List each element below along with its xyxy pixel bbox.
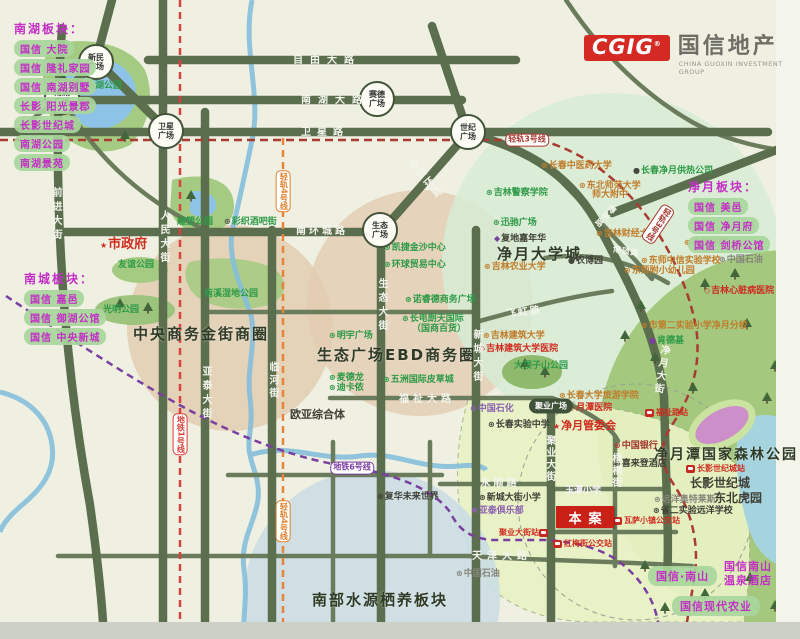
label-text: 雕塑公园 [177, 217, 213, 227]
road-label: 南环城路 [296, 227, 348, 237]
label-text: 吉林建筑大学医院 [486, 344, 558, 354]
project-pill: 国信 隆礼家园 [14, 59, 96, 76]
transit-line-label: 轻轨4号线 [276, 500, 291, 542]
landmark-label: 师大附中 [592, 191, 628, 200]
label-text: 福祉路站 [656, 408, 688, 417]
label-text: 彩织酒吧街 [232, 217, 277, 227]
project-pill: 国信 嘉邑 [24, 290, 84, 307]
road-label: 南四环路 [404, 159, 443, 202]
landmark-icon: ⊛ [653, 506, 660, 515]
landmark-icon: ⊛ [654, 495, 661, 504]
plaza-node: 聚业广场 [529, 399, 573, 414]
landmark-icon: ● [633, 166, 640, 175]
landmark-label: ⊛中国石化 [470, 405, 514, 414]
landmark-label: ⊛凯捷金沙中心 [384, 244, 446, 253]
landmark-label: ⊛中国银行 [614, 442, 658, 451]
landmark-label: ⊛吉林建筑大学 [483, 332, 545, 341]
landmark-label: 东北虎园 [714, 492, 762, 505]
landmark-label: ⊛吉林警察学院 [486, 189, 548, 198]
district-panel-title: 净月板块： [688, 178, 770, 195]
district-panel-title: 南湖板块： [14, 20, 96, 37]
landmark-icon: ✱ [471, 506, 478, 515]
project-pill: 长影世纪城 [14, 116, 81, 133]
label-text: 复华未来世界 [385, 492, 439, 502]
zone-label: 净月潭国家森林公园 [654, 448, 798, 463]
landmark-label: 友谊公园 [118, 261, 154, 270]
landmark-label: ⊛复华未来世界 [377, 493, 439, 502]
label-text: 瓦萨小镇公交站 [624, 516, 680, 525]
landmark-label: 雕塑公园 [177, 218, 213, 227]
road-label: 梧桐街 [610, 453, 620, 489]
bus-station-icon [553, 540, 562, 548]
label-text: 五洲国际皮草城 [391, 375, 454, 385]
bus-station-icon [645, 409, 654, 417]
landmark-icon: ⊛ [488, 420, 495, 429]
label-text: 中国石油 [464, 569, 500, 579]
road-label: 生态大街 [376, 278, 386, 334]
landmark-label: ⊛环球贸易中心 [384, 261, 446, 270]
label-text: 喜来登酒店 [622, 459, 667, 469]
landmark-label: ●长春净月供热公司 [633, 167, 713, 176]
bus-station-icon [613, 517, 622, 525]
label-text: 南溪湿地公园 [204, 289, 258, 299]
project-pill: 国信 南湖别墅 [14, 78, 96, 95]
road-label: 临河街 [267, 362, 277, 401]
landmark-icon: ⊛ [405, 295, 412, 304]
transit-line-label: 轻轨3号线 [505, 134, 549, 147]
label-text: 诺睿德商务广场 [413, 295, 476, 305]
road-label: 福祉大路 [399, 395, 455, 405]
road-label: 亚泰大街 [200, 366, 210, 422]
landmark-icon: ● [649, 336, 656, 345]
government-landmark: ★市政府 [100, 238, 147, 252]
landmark-icon: ⊛ [470, 404, 477, 413]
label-text: 省二实验远洋学校 [661, 506, 733, 516]
district-panel-title: 南城板块： [24, 270, 106, 287]
label-text: 东师中信实验学校 [649, 256, 721, 266]
project-pill: 国信 中央新城 [24, 328, 106, 345]
project-pill: 国信 净月府 [688, 217, 759, 234]
road-label: 净月大街 [651, 344, 669, 397]
landmark-icon: ⊛ [456, 569, 463, 578]
landmark-label: ⊛明宇广场 [329, 332, 373, 341]
project-label: 国信现代农业 [672, 596, 760, 616]
road-label: 博硕路 [612, 246, 640, 259]
label-text: 欧亚综合体 [290, 408, 345, 421]
label-text: 长影世纪城 [690, 476, 750, 490]
transit-line-label: 地铁6号线 [330, 462, 374, 475]
landmark-icon: ◆ [494, 234, 500, 243]
road-label: 聚业大街 [544, 435, 554, 483]
label-text: 玉潭小学 [565, 486, 601, 496]
plaza-node: 世纪 广场 [450, 114, 486, 150]
landmark-icon: ⊛ [377, 492, 384, 501]
project-pill: 长影 阳光景郡 [14, 97, 96, 114]
bus-station-icon [686, 465, 695, 473]
station-label: 红梅街公交站 [553, 540, 612, 548]
label-text: 中央商务金街商圈 [133, 325, 269, 343]
location-map: 南湖公园雕塑公园⊛彩织酒吧街★市政府友谊公园光明公园南溪湿地公园中央商务金街商圈… [0, 0, 800, 639]
landmark-label: ⊛新城大街小学 [479, 494, 541, 503]
station-label: 聚业大街站 [499, 529, 550, 537]
landmark-icon: ⊛ [624, 266, 631, 275]
label-text: 吉林心脏病医院 [711, 286, 774, 296]
label-text: 师大附中 [592, 190, 628, 200]
label-text: 长春中医药大学 [549, 161, 612, 171]
label-text: 大顶子山公园 [514, 361, 568, 371]
plaza-node: 卫星 广场 [148, 113, 184, 149]
label-text: 光明公园 [103, 305, 139, 315]
plaza-node: 生态 广场 [362, 212, 398, 248]
landmark-label: ⊛市第二实验小学净月分校 [641, 322, 748, 331]
road-label: 新城大街 [471, 329, 481, 385]
zone-label: 南部水源栖养板块 [312, 593, 448, 609]
label-text: 亚泰俱乐部 [479, 506, 524, 516]
road-label: 天泽大路 [472, 552, 532, 562]
station-label: 瓦萨小镇公交站 [613, 517, 680, 525]
label-text: 聚业大街站 [499, 528, 539, 537]
landmark-label: 光明公园 [103, 306, 139, 315]
landmark-label: ⊛长春实验中学 [488, 421, 550, 430]
landmark-label: ◆复地嘉年华 [494, 235, 546, 244]
registered-mark-icon: ® [654, 40, 662, 48]
road-label: 卫星路 [301, 128, 349, 138]
landmark-label: ⊛远洋奥特莱斯 [654, 496, 716, 505]
label-text: 友谊公园 [118, 260, 154, 270]
landmark-icon: ⊛ [614, 441, 621, 450]
landmark-icon: ⊛ [224, 217, 231, 226]
landmark-label: ⊛迅驰广场 [493, 219, 537, 228]
landmark-icon: ⊛ [329, 383, 336, 392]
label-text: 净月管委会 [561, 419, 616, 432]
district-panel-nanhu: 南湖板块：国信 大院国信 隆礼家园国信 南湖别墅长影 阳光景郡长影世纪城南湖公园… [14, 20, 96, 173]
brand-name-en: CHINA GUOXIN INVESTMENT GROUP [679, 60, 800, 76]
landmark-label: ⊛彩织酒吧街 [224, 218, 277, 227]
label-text: 长春实验中学 [496, 420, 550, 430]
landmark-icon: ★ [553, 422, 560, 431]
landmark-label: （国商百货） [412, 325, 466, 334]
brand-logo: CGIG® 国信地产 CHINA GUOXIN INVESTMENT GROUP [584, 35, 800, 76]
landmark-icon: ⊛ [493, 218, 500, 227]
government-landmark: ★净月管委会 [553, 420, 616, 432]
landmark-icon: ⊛ [484, 262, 491, 271]
landmark-icon: ⊛ [641, 321, 648, 330]
landmark-icon: ⊛ [383, 375, 390, 384]
district-panel-nancheng: 南城板块：国信 嘉邑国信 御湖公馆国信 中央新城 [24, 270, 106, 347]
road-label: 永顺路 [481, 479, 520, 489]
project-label: 国信南山 温泉酒店 [724, 560, 772, 588]
label-text: 中国银行 [622, 441, 658, 451]
landmark-label: ✱亚泰俱乐部 [471, 507, 524, 516]
school-label: 玉潭小学 [565, 487, 601, 496]
label-text: 市第二实验小学净月分校 [649, 321, 748, 331]
label-text: 吉林农业大学 [492, 262, 546, 272]
landmark-label: 欧亚综合体 [290, 409, 345, 421]
landmark-label: 南溪湿地公园 [204, 290, 258, 299]
landmark-icon: ⊛ [486, 188, 493, 197]
landmark-label: 大顶子山公园 [514, 362, 568, 371]
project-label: 国信·南山 [648, 566, 717, 586]
road-label: 前进大街 [50, 187, 60, 243]
project-site-marker: 本案 [556, 506, 614, 528]
station-label: 长影世纪城站 [686, 465, 745, 473]
landmark-label: ⊛喜来登酒店 [614, 460, 667, 469]
landmark-label: ⊛五洲国际皮草城 [383, 376, 454, 385]
road-label: 博学路 [593, 203, 617, 228]
station-label: 福祉路站 [645, 409, 688, 417]
label-text: 远洋奥特莱斯 [662, 495, 716, 505]
label-text: 长电朗天国际 [410, 314, 464, 324]
label-text: 长春净月供热公司 [641, 166, 713, 176]
road-label: 南湖大路 [301, 96, 369, 106]
label-text: 长春大学旅游学院 [567, 391, 639, 401]
label-text: 麦德龙 [337, 373, 364, 383]
zone-label: 生态广场EBD商务圈 [317, 348, 476, 364]
landmark-label: 长影世纪城 [690, 477, 750, 490]
road-label: 飞虹路 [506, 306, 543, 320]
transit-line-label: 轻轨4号线 [276, 170, 291, 212]
landmark-icon: ⊛ [483, 331, 490, 340]
label-text: 凯捷金沙中心 [392, 243, 446, 253]
label-text: 吉林警察学院 [494, 188, 548, 198]
label-text: 市政府 [108, 237, 147, 252]
label-text: 东北虎园 [714, 491, 762, 505]
cgig-logo-text: CGIG [592, 35, 654, 59]
map-overlay: 南湖公园雕塑公园⊛彩织酒吧街★市政府友谊公园光明公园南溪湿地公园中央商务金街商圈… [0, 0, 800, 639]
label-text: 南部水源栖养板块 [312, 591, 448, 609]
bus-station-icon [539, 529, 548, 537]
label-text: 迅驰广场 [501, 218, 537, 228]
project-pill: 国信 御湖公馆 [24, 309, 106, 326]
road-label: 自由大路 [293, 56, 361, 66]
road-label: 人民大街 [158, 210, 168, 266]
hospital-landmark: ◇吉林心脏病医院 [704, 287, 774, 296]
label-text: 中国石化 [478, 404, 514, 414]
landmark-icon: ◇ [704, 286, 710, 295]
project-pill: 国信 美邑 [688, 198, 748, 215]
landmark-icon: ⊛ [579, 181, 586, 190]
landmark-label: ⊛诺睿德商务广场 [405, 296, 476, 305]
landmark-icon: ⊛ [541, 161, 548, 170]
hospital-landmark: ◇吉林建筑大学医院 [479, 345, 558, 354]
label-text: 长影世纪城站 [697, 464, 745, 473]
landmark-icon: ⊛ [384, 260, 391, 269]
landmark-icon: ⊛ [402, 314, 409, 323]
project-pill: 南湖景苑 [14, 154, 70, 171]
project-pill: 国信 剑桥公馆 [688, 236, 770, 253]
label-text: 农博园 [576, 256, 603, 266]
brand-wordmark: 国信地产 CHINA GUOXIN INVESTMENT GROUP [670, 35, 800, 76]
label-text: 新城大街小学 [487, 493, 541, 503]
project-pill: 南湖公园 [14, 135, 70, 152]
landmark-icon: ⊛ [479, 493, 486, 502]
landmark-icon: ★ [100, 241, 107, 250]
landmark-icon: ⊛ [329, 331, 336, 340]
landmark-icon: ⊛ [596, 229, 603, 238]
label-text: 吉林建筑大学 [491, 331, 545, 341]
project-pill: 国信 大院 [14, 40, 74, 57]
landmark-label: ⊛中国石油 [456, 570, 500, 579]
landmark-icon: ⊛ [719, 255, 726, 264]
label-text: 复地嘉年华 [501, 234, 546, 244]
label-text: 迪卡侬 [337, 383, 364, 393]
landmark-label: ⊛迪卡侬 [329, 384, 364, 393]
label-text: 月潭医院 [576, 403, 612, 413]
label-text: 红梅街公交站 [564, 539, 612, 548]
label-text: 明宇广场 [337, 331, 373, 341]
label-text: 环球贸易中心 [392, 260, 446, 270]
landmark-icon: ● [568, 256, 575, 265]
landmark-label: ⊛长春中医药大学 [541, 162, 612, 171]
label-text: 生态广场EBD商务圈 [317, 346, 476, 364]
cgig-logo-mark: CGIG® [584, 35, 670, 61]
landmark-label: ●农博园 [568, 257, 603, 266]
landmark-icon: ⊛ [641, 256, 648, 265]
label-text: （国商百货） [412, 324, 466, 334]
transit-line-label: 轻轨3号线 [640, 203, 676, 246]
landmark-icon: ⊛ [329, 373, 336, 382]
district-panel-jingyue: 净月板块：国信 美邑国信 净月府国信 剑桥公馆 [688, 178, 770, 255]
hospital-landmark: ◇月潭医院 [569, 404, 612, 413]
transit-line-label: 地铁1号线 [173, 413, 188, 455]
landmark-label: ⊛东师附小幼儿园 [624, 267, 695, 276]
brand-name-cn: 国信地产 [678, 36, 800, 58]
label-text: 中国石油 [727, 255, 763, 265]
label-text: 东师附小幼儿园 [632, 266, 695, 276]
label-text: 净月潭国家森林公园 [654, 447, 798, 463]
zone-label: 中央商务金街商圈 [133, 327, 269, 343]
landmark-label: ⊛吉林农业大学 [484, 263, 546, 272]
landmark-label: ⊛中国石油 [719, 256, 763, 265]
